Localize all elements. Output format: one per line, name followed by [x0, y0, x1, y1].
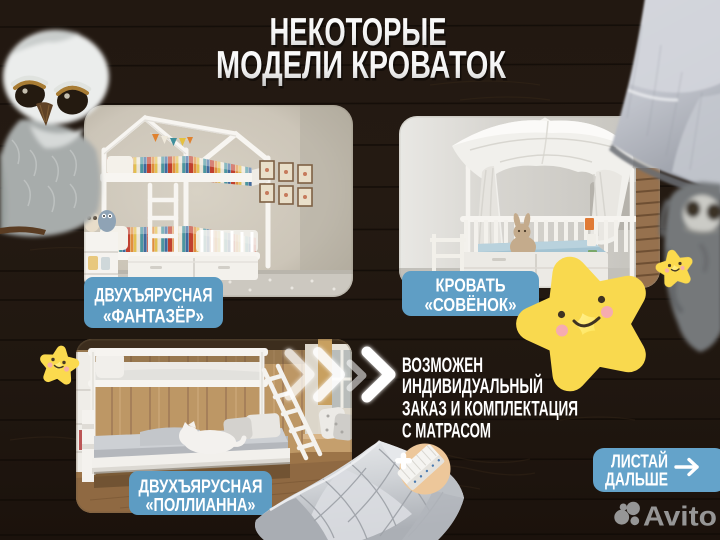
- svg-text:ДВУХЪЯРУСНАЯ: ДВУХЪЯРУСНАЯ: [95, 286, 213, 307]
- svg-text:«ФАНТАЗЁР»: «ФАНТАЗЁР»: [103, 307, 204, 328]
- svg-text:КРОВАТЬ: КРОВАТЬ: [436, 276, 506, 296]
- svg-text:ДВУХЪЯРУСНАЯ: ДВУХЪЯРУСНАЯ: [139, 477, 263, 497]
- svg-text:ДАЛЬШЕ: ДАЛЬШЕ: [605, 469, 668, 490]
- svg-text:МОДЕЛИ КРОВАТОК: МОДЕЛИ КРОВАТОК: [216, 44, 506, 87]
- svg-text:ЗАКАЗ И КОМПЛЕКТАЦИЯ: ЗАКАЗ И КОМПЛЕКТАЦИЯ: [402, 398, 578, 421]
- svg-text:С МАТРАСОМ: С МАТРАСОМ: [402, 420, 491, 443]
- svg-text:ИНДИВИДУАЛЬНЫЙ: ИНДИВИДУАЛЬНЫЙ: [402, 374, 543, 398]
- svg-text:«СОВЁНОК»: «СОВЁНОК»: [425, 295, 517, 315]
- svg-text:Avito: Avito: [643, 501, 717, 532]
- svg-text:«ПОЛЛИАННА»: «ПОЛЛИАННА»: [146, 495, 256, 515]
- svg-text:ВОЗМОЖЕН: ВОЗМОЖЕН: [402, 354, 483, 377]
